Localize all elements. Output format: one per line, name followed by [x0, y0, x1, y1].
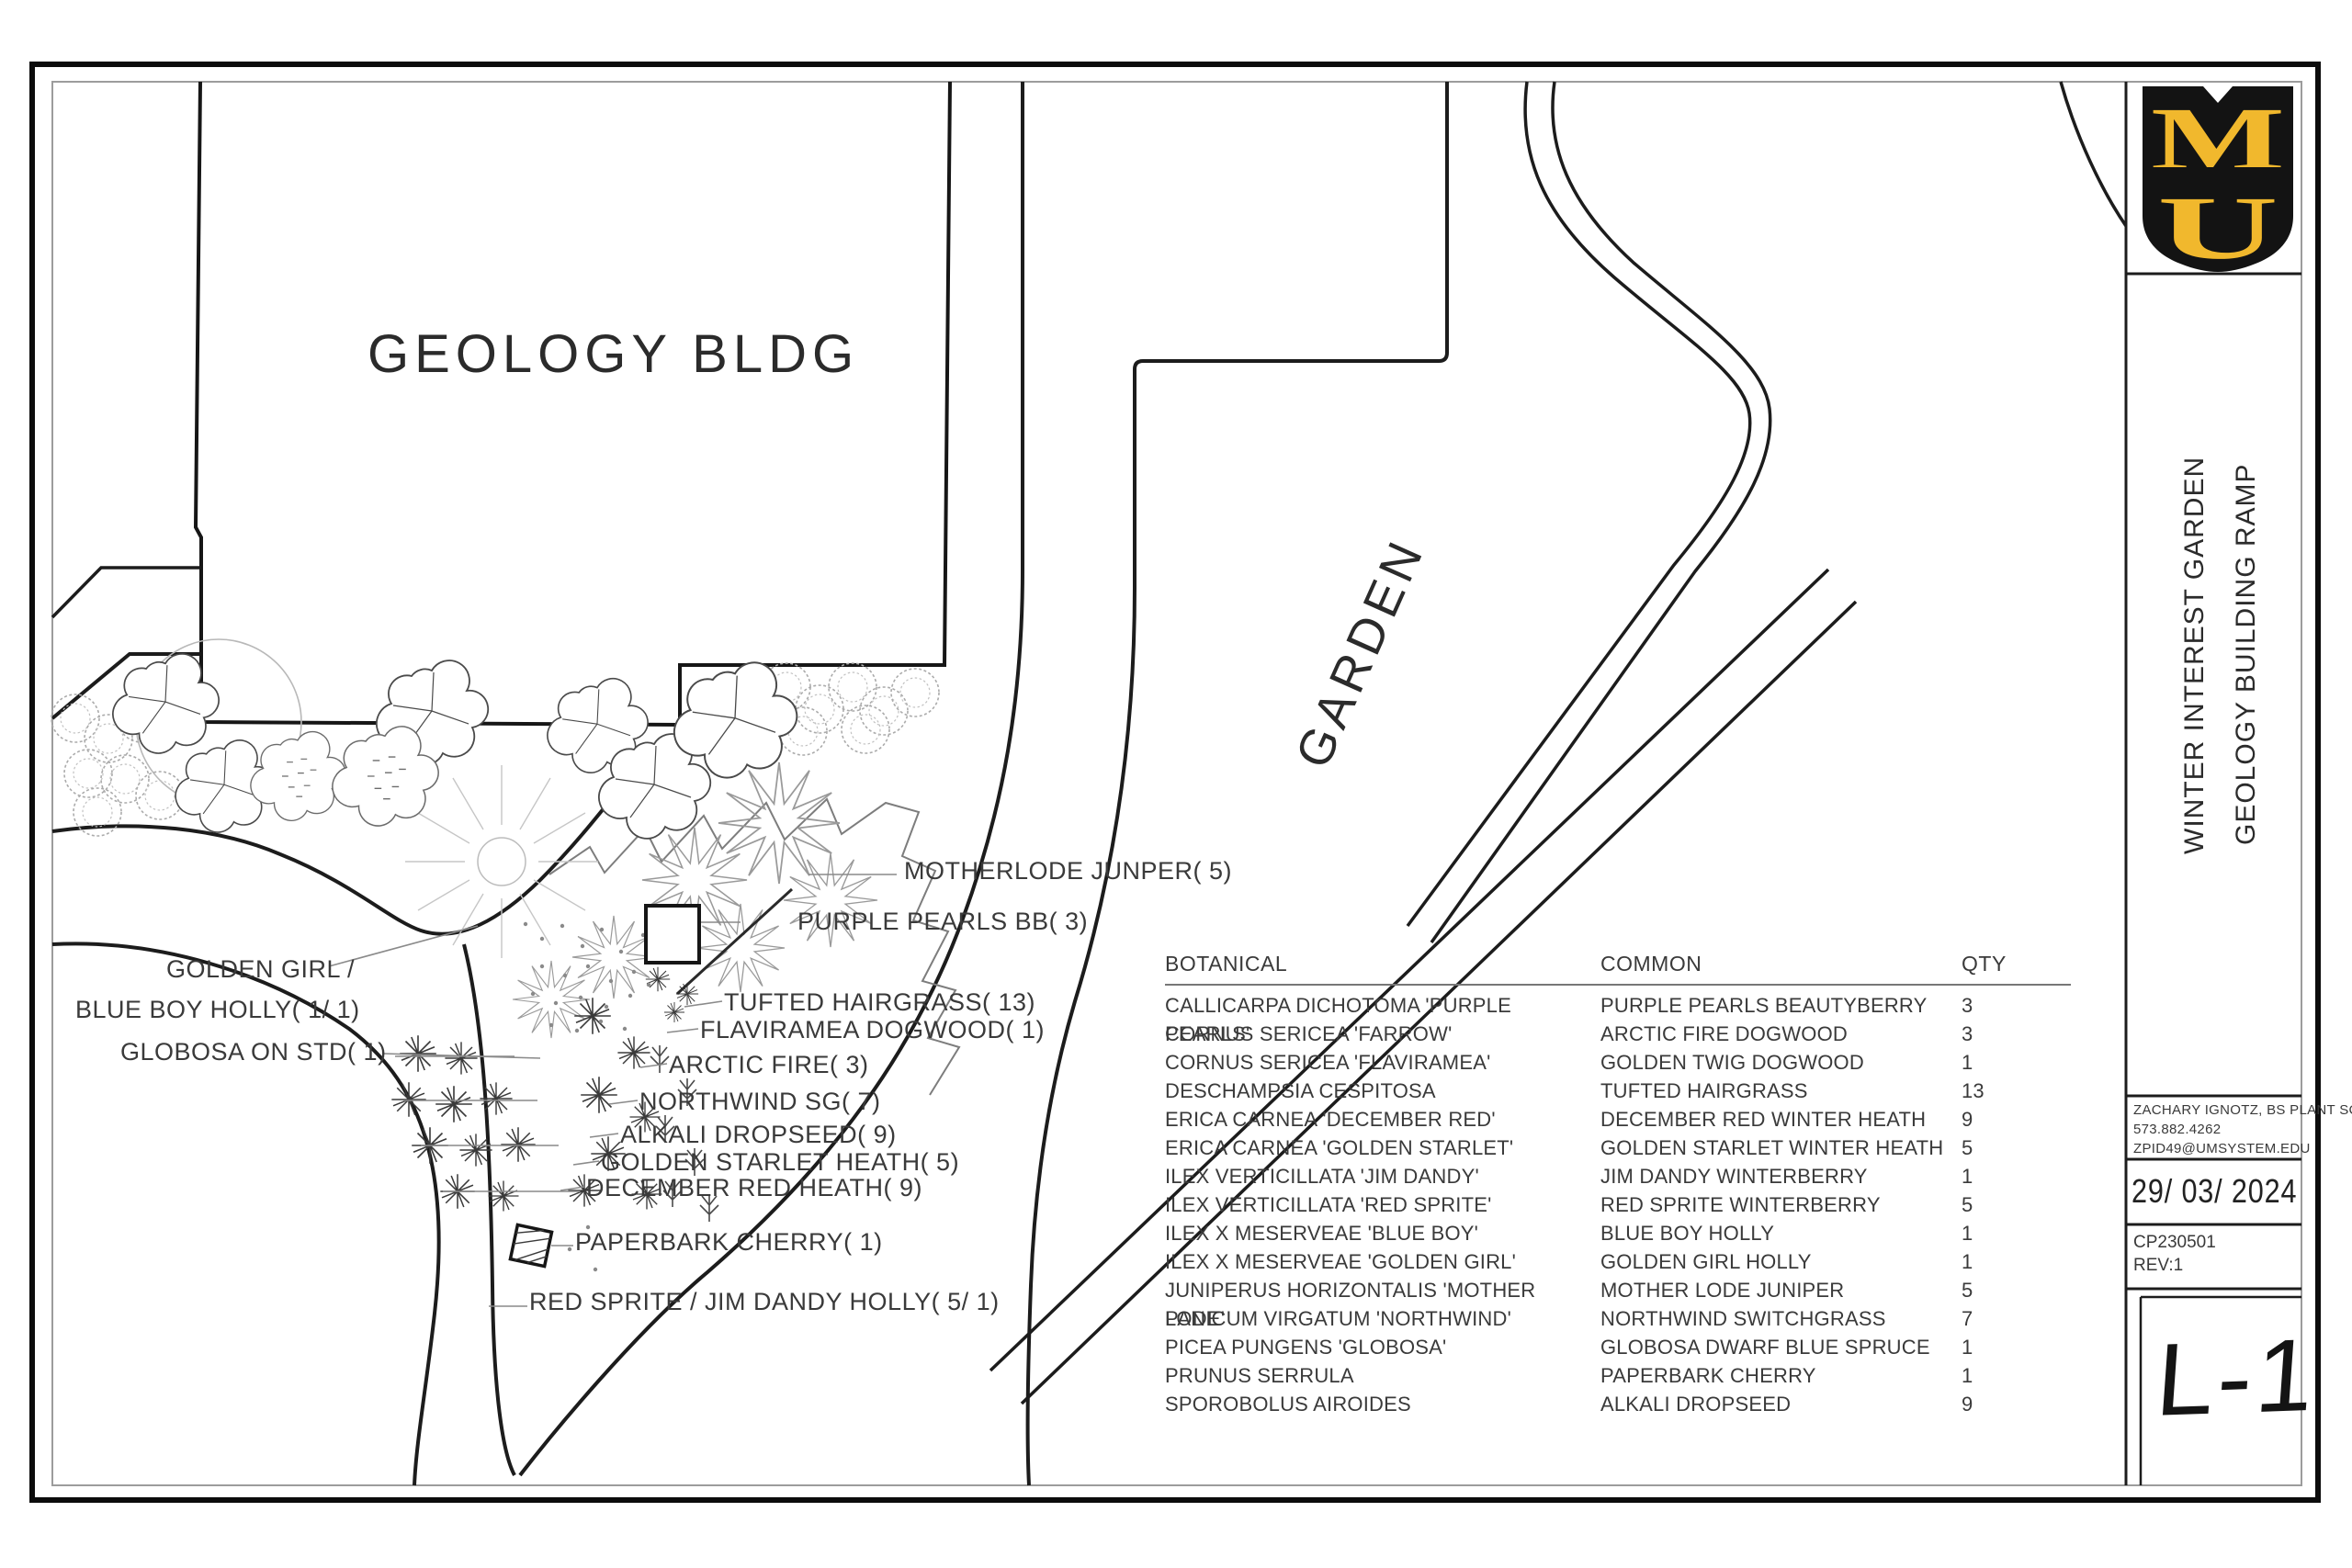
cell-qty: 1 [1962, 1048, 2071, 1077]
cell-botanical: ILEX X MESERVEAE 'GOLDEN GIRL' [1165, 1247, 1600, 1276]
snowflake-shrub-symbols [646, 967, 698, 1022]
plant-schedule-header: BOTANICAL COMMON QTY [1165, 952, 2071, 986]
cell-qty: 1 [1962, 1219, 2071, 1247]
callout-arctic-fire: ARCTIC FIRE( 3) [669, 1051, 869, 1079]
callout-december-red: DECEMBER RED HEATH( 9) [586, 1174, 922, 1202]
cell-qty: 3 [1962, 1020, 2071, 1048]
cell-botanical: CORNUS SERICEA 'FLAVIRAMEA' [1165, 1048, 1600, 1077]
cell-botanical: ILEX VERTICILLATA 'RED SPRITE' [1165, 1190, 1600, 1219]
sheet-title-line1: WINTER INTEREST GARDEN [2179, 457, 2211, 854]
cell-common: PAPERBARK CHERRY [1600, 1361, 1962, 1390]
bumpy-bush-symbols [251, 727, 438, 826]
cell-botanical: CORNUS SERICEA 'FARROW' [1165, 1020, 1600, 1048]
cell-botanical: ERICA CARNEA 'DECEMBER RED' [1165, 1105, 1600, 1134]
drawing-sheet: { "sheet": { "logo": { "letter_top": "M"… [0, 0, 2352, 1568]
callout-golden-starlet: GOLDEN STARLET HEATH( 5) [601, 1148, 959, 1177]
cell-common: GOLDEN STARLET WINTER HEATH [1600, 1134, 1962, 1162]
table-row: CALLICARPA DICHOTOMA 'PURPLE PEARLS'PURP… [1165, 991, 2071, 1020]
cell-common: GLOBOSA DWARF BLUE SPRUCE [1600, 1333, 1962, 1361]
callout-alkali-dropseed: ALKALI DROPSEED( 9) [620, 1121, 897, 1149]
plant-schedule-rows: CALLICARPA DICHOTOMA 'PURPLE PEARLS'PURP… [1165, 991, 2071, 1418]
cell-qty: 13 [1962, 1077, 2071, 1105]
beautyberry-square-symbol [646, 906, 699, 963]
callout-paperbark-cherry: PAPERBARK CHERRY( 1) [575, 1228, 883, 1257]
table-row: PANICUM VIRGATUM 'NORTHWIND'NORTHWIND SW… [1165, 1304, 2071, 1333]
callout-red-sprite-jim-dandy: RED SPRITE / JIM DANDY HOLLY( 5/ 1) [529, 1288, 1000, 1316]
cell-qty: 7 [1962, 1304, 2071, 1333]
contact-block: ZACHARY IGNOTZ, BS PLANT SCI 573.882.426… [2133, 1100, 2352, 1158]
table-row: SPOROBOLUS AIROIDESALKALI DROPSEED9 [1165, 1390, 2071, 1418]
table-row: PRUNUS SERRULAPAPERBARK CHERRY1 [1165, 1361, 2071, 1390]
cloud-tree-symbols [113, 654, 797, 839]
plant-schedule-table: BOTANICAL COMMON QTY CALLICARPA DICHOTOM… [1165, 952, 2071, 1418]
callout-tufted-hairgrass: TUFTED HAIRGRASS( 13) [724, 988, 1035, 1017]
cell-qty: 1 [1962, 1361, 2071, 1390]
col-header-qty: QTY [1962, 952, 2071, 976]
sheet-date: 29/ 03/ 2024 [2131, 1172, 2297, 1211]
project-block: CP230501 REV:1 [2133, 1231, 2216, 1277]
dotted-groundcover [524, 922, 656, 1271]
cell-qty: 5 [1962, 1190, 2071, 1219]
contact-phone: 573.882.4262 [2133, 1120, 2352, 1139]
mu-logo-letter-u: U [2157, 179, 2278, 278]
table-row: JUNIPERUS HORIZONTALIS 'MOTHER LODE'MOTH… [1165, 1276, 2071, 1304]
table-row: ILEX VERTICILLATA 'JIM DANDY'JIM DANDY W… [1165, 1162, 2071, 1190]
cell-common: BLUE BOY HOLLY [1600, 1219, 1962, 1247]
building-label: GEOLOGY BLDG [367, 323, 859, 385]
table-row: ILEX X MESERVEAE 'BLUE BOY'BLUE BOY HOLL… [1165, 1219, 2071, 1247]
cell-common: TUFTED HAIRGRASS [1600, 1077, 1962, 1105]
cell-qty: 1 [1962, 1333, 2071, 1361]
table-row: CORNUS SERICEA 'FARROW'ARCTIC FIRE DOGWO… [1165, 1020, 2071, 1048]
project-number: CP230501 [2133, 1231, 2216, 1254]
building-outline [196, 82, 950, 725]
cell-botanical: PANICUM VIRGATUM 'NORTHWIND' [1165, 1304, 1600, 1333]
callout-golden-girl: GOLDEN GIRL / [166, 955, 355, 984]
cell-qty: 9 [1962, 1105, 2071, 1134]
cell-qty: 1 [1962, 1247, 2071, 1276]
cell-botanical: ILEX VERTICILLATA 'JIM DANDY' [1165, 1162, 1600, 1190]
callout-globosa-on-std: GLOBOSA ON STD( 1) [120, 1038, 387, 1066]
cell-botanical: PRUNUS SERRULA [1165, 1361, 1600, 1390]
table-row: DESCHAMPSIA CESPITOSATUFTED HAIRGRASS13 [1165, 1077, 2071, 1105]
contact-email: ZPID49@UMSYSTEM.EDU [2133, 1139, 2352, 1158]
table-row: ERICA CARNEA 'GOLDEN STARLET'GOLDEN STAR… [1165, 1134, 2071, 1162]
callout-motherlode-juniper: MOTHERLODE JUNPER( 5) [904, 857, 1232, 886]
callout-flaviramea-dogwood: FLAVIRAMEA DOGWOOD( 1) [700, 1016, 1045, 1044]
table-row: ILEX X MESERVEAE 'GOLDEN GIRL'GOLDEN GIR… [1165, 1247, 2071, 1276]
cell-common: RED SPRITE WINTERBERRY [1600, 1190, 1962, 1219]
cell-botanical: ERICA CARNEA 'GOLDEN STARLET' [1165, 1134, 1600, 1162]
table-row: CORNUS SERICEA 'FLAVIRAMEA'GOLDEN TWIG D… [1165, 1048, 2071, 1077]
cell-botanical: PICEA PUNGENS 'GLOBOSA' [1165, 1333, 1600, 1361]
cell-common: GOLDEN TWIG DOGWOOD [1600, 1048, 1962, 1077]
sheet-number: L-1 [2153, 1315, 2321, 1439]
cherry-square-symbol [510, 1224, 551, 1266]
table-row: ILEX VERTICILLATA 'RED SPRITE'RED SPRITE… [1165, 1190, 2071, 1219]
mu-logo: M U [2143, 86, 2293, 278]
cell-common: NORTHWIND SWITCHGRASS [1600, 1304, 1962, 1333]
cell-common: DECEMBER RED WINTER HEATH [1600, 1105, 1962, 1134]
sheet-title-line2: GEOLOGY BUILDING RAMP [2231, 463, 2262, 845]
revision-label: REV:1 [2133, 1254, 2216, 1277]
contact-name: ZACHARY IGNOTZ, BS PLANT SCI [2133, 1100, 2352, 1120]
callout-purple-pearls: PURPLE PEARLS BB( 3) [797, 908, 1088, 936]
cell-botanical: DESCHAMPSIA CESPITOSA [1165, 1077, 1600, 1105]
cell-common: ARCTIC FIRE DOGWOOD [1600, 1020, 1962, 1048]
cell-qty: 1 [1962, 1162, 2071, 1190]
cell-common: GOLDEN GIRL HOLLY [1600, 1247, 1962, 1276]
callout-blue-boy-holly: BLUE BOY HOLLY( 1/ 1) [75, 996, 360, 1024]
table-row: PICEA PUNGENS 'GLOBOSA'GLOBOSA DWARF BLU… [1165, 1333, 2071, 1361]
table-row: ERICA CARNEA 'DECEMBER RED'DECEMBER RED … [1165, 1105, 2071, 1134]
callout-northwind-sg: NORTHWIND SG( 7) [639, 1088, 881, 1116]
cell-botanical: SPOROBOLUS AIROIDES [1165, 1390, 1600, 1418]
cell-common: JIM DANDY WINTERBERRY [1600, 1162, 1962, 1190]
existing-tree-symbol [405, 765, 598, 958]
cell-qty: 9 [1962, 1390, 2071, 1418]
cell-qty: 5 [1962, 1134, 2071, 1162]
cell-common: ALKALI DROPSEED [1600, 1390, 1962, 1418]
cell-botanical: ILEX X MESERVEAE 'BLUE BOY' [1165, 1219, 1600, 1247]
col-header-common: COMMON [1600, 952, 1962, 976]
col-header-botanical: BOTANICAL [1165, 952, 1600, 976]
